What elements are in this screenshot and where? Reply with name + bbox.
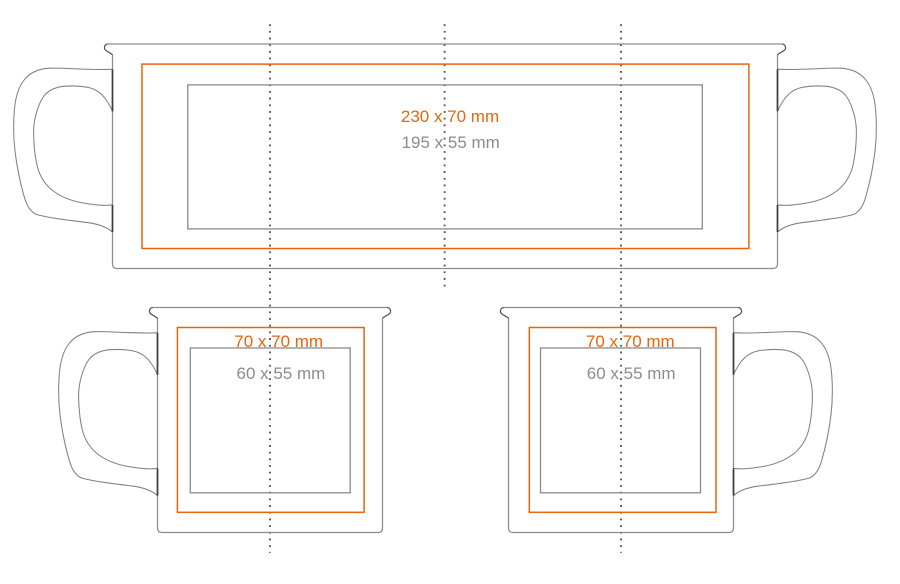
svg-text:195 x 55 mm: 195 x 55 mm — [402, 133, 500, 152]
svg-text:230 x 70 mm: 230 x 70 mm — [401, 107, 499, 126]
svg-text:70 x 70 mm: 70 x 70 mm — [586, 332, 675, 351]
svg-text:60 x 55 mm: 60 x 55 mm — [587, 364, 676, 383]
svg-text:70 x 70 mm: 70 x 70 mm — [234, 332, 323, 351]
svg-text:60 x 55 mm: 60 x 55 mm — [236, 364, 325, 383]
